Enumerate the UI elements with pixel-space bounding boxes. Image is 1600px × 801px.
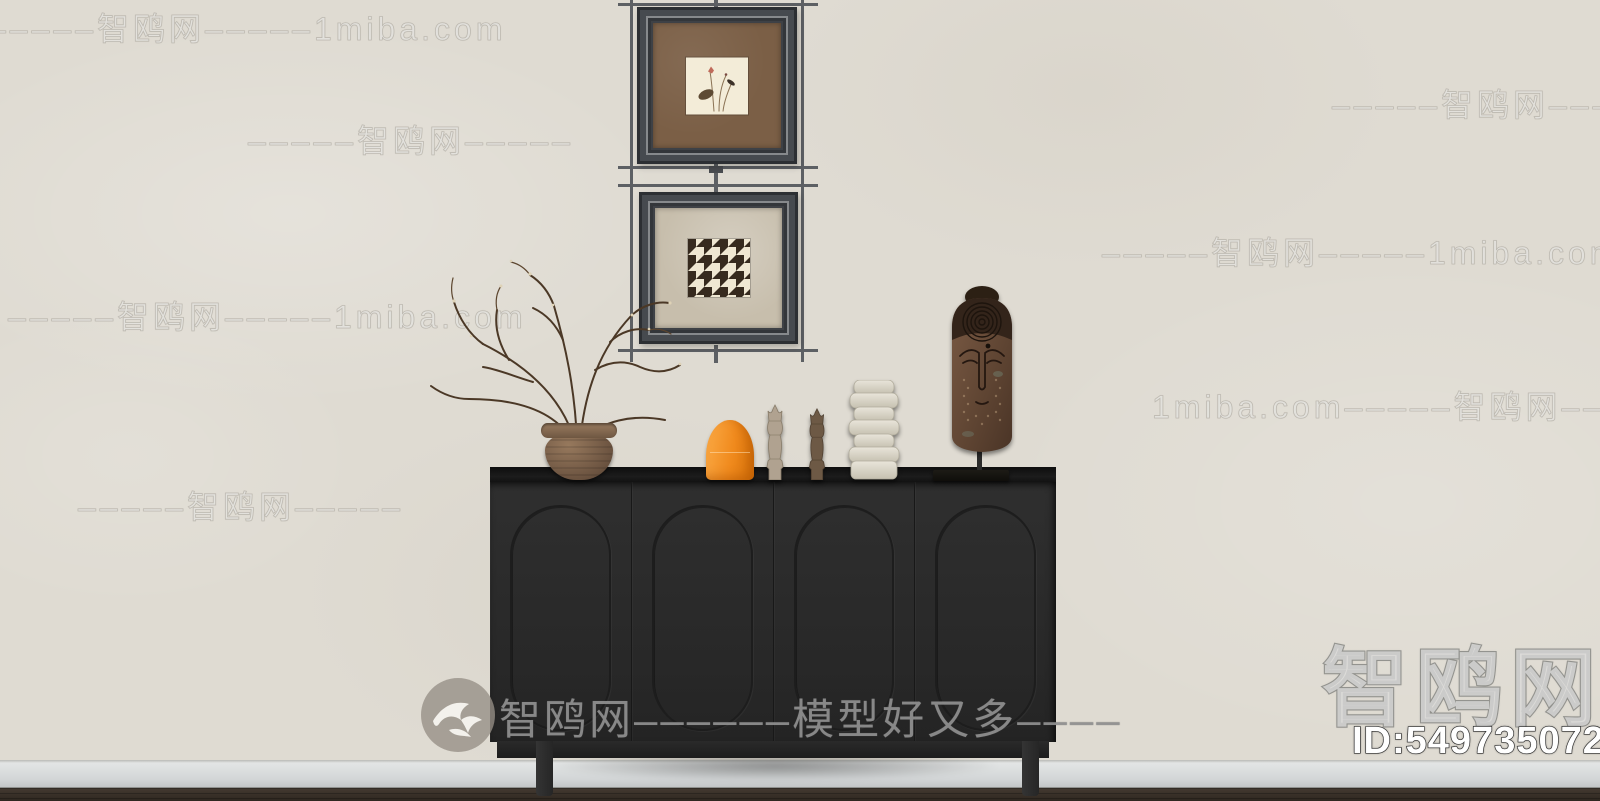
botanical-artwork — [686, 57, 748, 114]
stone-figurine-left — [757, 401, 793, 485]
interior-render-scene: –––––智鸥网–––––1miba.com –––––智鸥网––––– –––… — [0, 0, 1600, 801]
figurine-icon — [757, 401, 793, 480]
branches-icon — [413, 248, 718, 444]
model-id-text: ID:549735072 — [1352, 720, 1600, 763]
stacked-stones-icon — [846, 380, 902, 480]
buddha-head-statue — [946, 284, 1018, 467]
dried-branches — [413, 248, 718, 449]
hanging-rod-vertical — [801, 0, 804, 177]
seagull-logo-icon — [420, 677, 496, 753]
wall-watermark: –––––智鸥网––––– — [78, 482, 404, 528]
cabinet-floor-shadow — [492, 756, 1058, 788]
jar-seam-line — [710, 452, 750, 453]
statue-stand-base — [933, 470, 1009, 481]
wall-watermark: –––––智鸥网––––– — [1332, 80, 1600, 126]
stone-figurine-right — [799, 405, 835, 485]
wall-watermark: –––––智鸥网–––––1miba.com — [0, 4, 506, 50]
hanging-rod-horizontal — [618, 184, 818, 187]
stacked-stone-sculpture — [846, 380, 902, 485]
watermark-tagline: 智鸥网––––––模型好又多–––– — [499, 686, 1123, 747]
hanging-rod-horizontal — [618, 3, 818, 6]
cabinet-leg — [536, 741, 553, 796]
picture-frame-botanical — [637, 7, 797, 164]
rod-connector — [709, 166, 723, 173]
lotus-sketch-icon — [686, 57, 748, 114]
wall-watermark: –––––智鸥网–––––1miba.com — [1102, 228, 1600, 274]
wall-watermark: –––––智鸥网––––– — [248, 116, 574, 162]
wood-floor — [0, 788, 1600, 801]
figurine-icon — [799, 405, 835, 480]
hanging-rod-vertical — [801, 177, 804, 362]
wall-watermark: 1miba.com–––––智鸥网––––– — [1152, 382, 1600, 428]
frame-matte-brown — [653, 23, 781, 148]
buddha-head-icon — [946, 284, 1018, 462]
hanging-rod-vertical — [630, 0, 633, 177]
ceramic-vase-rim — [541, 423, 617, 438]
cabinet-leg — [1022, 741, 1039, 796]
